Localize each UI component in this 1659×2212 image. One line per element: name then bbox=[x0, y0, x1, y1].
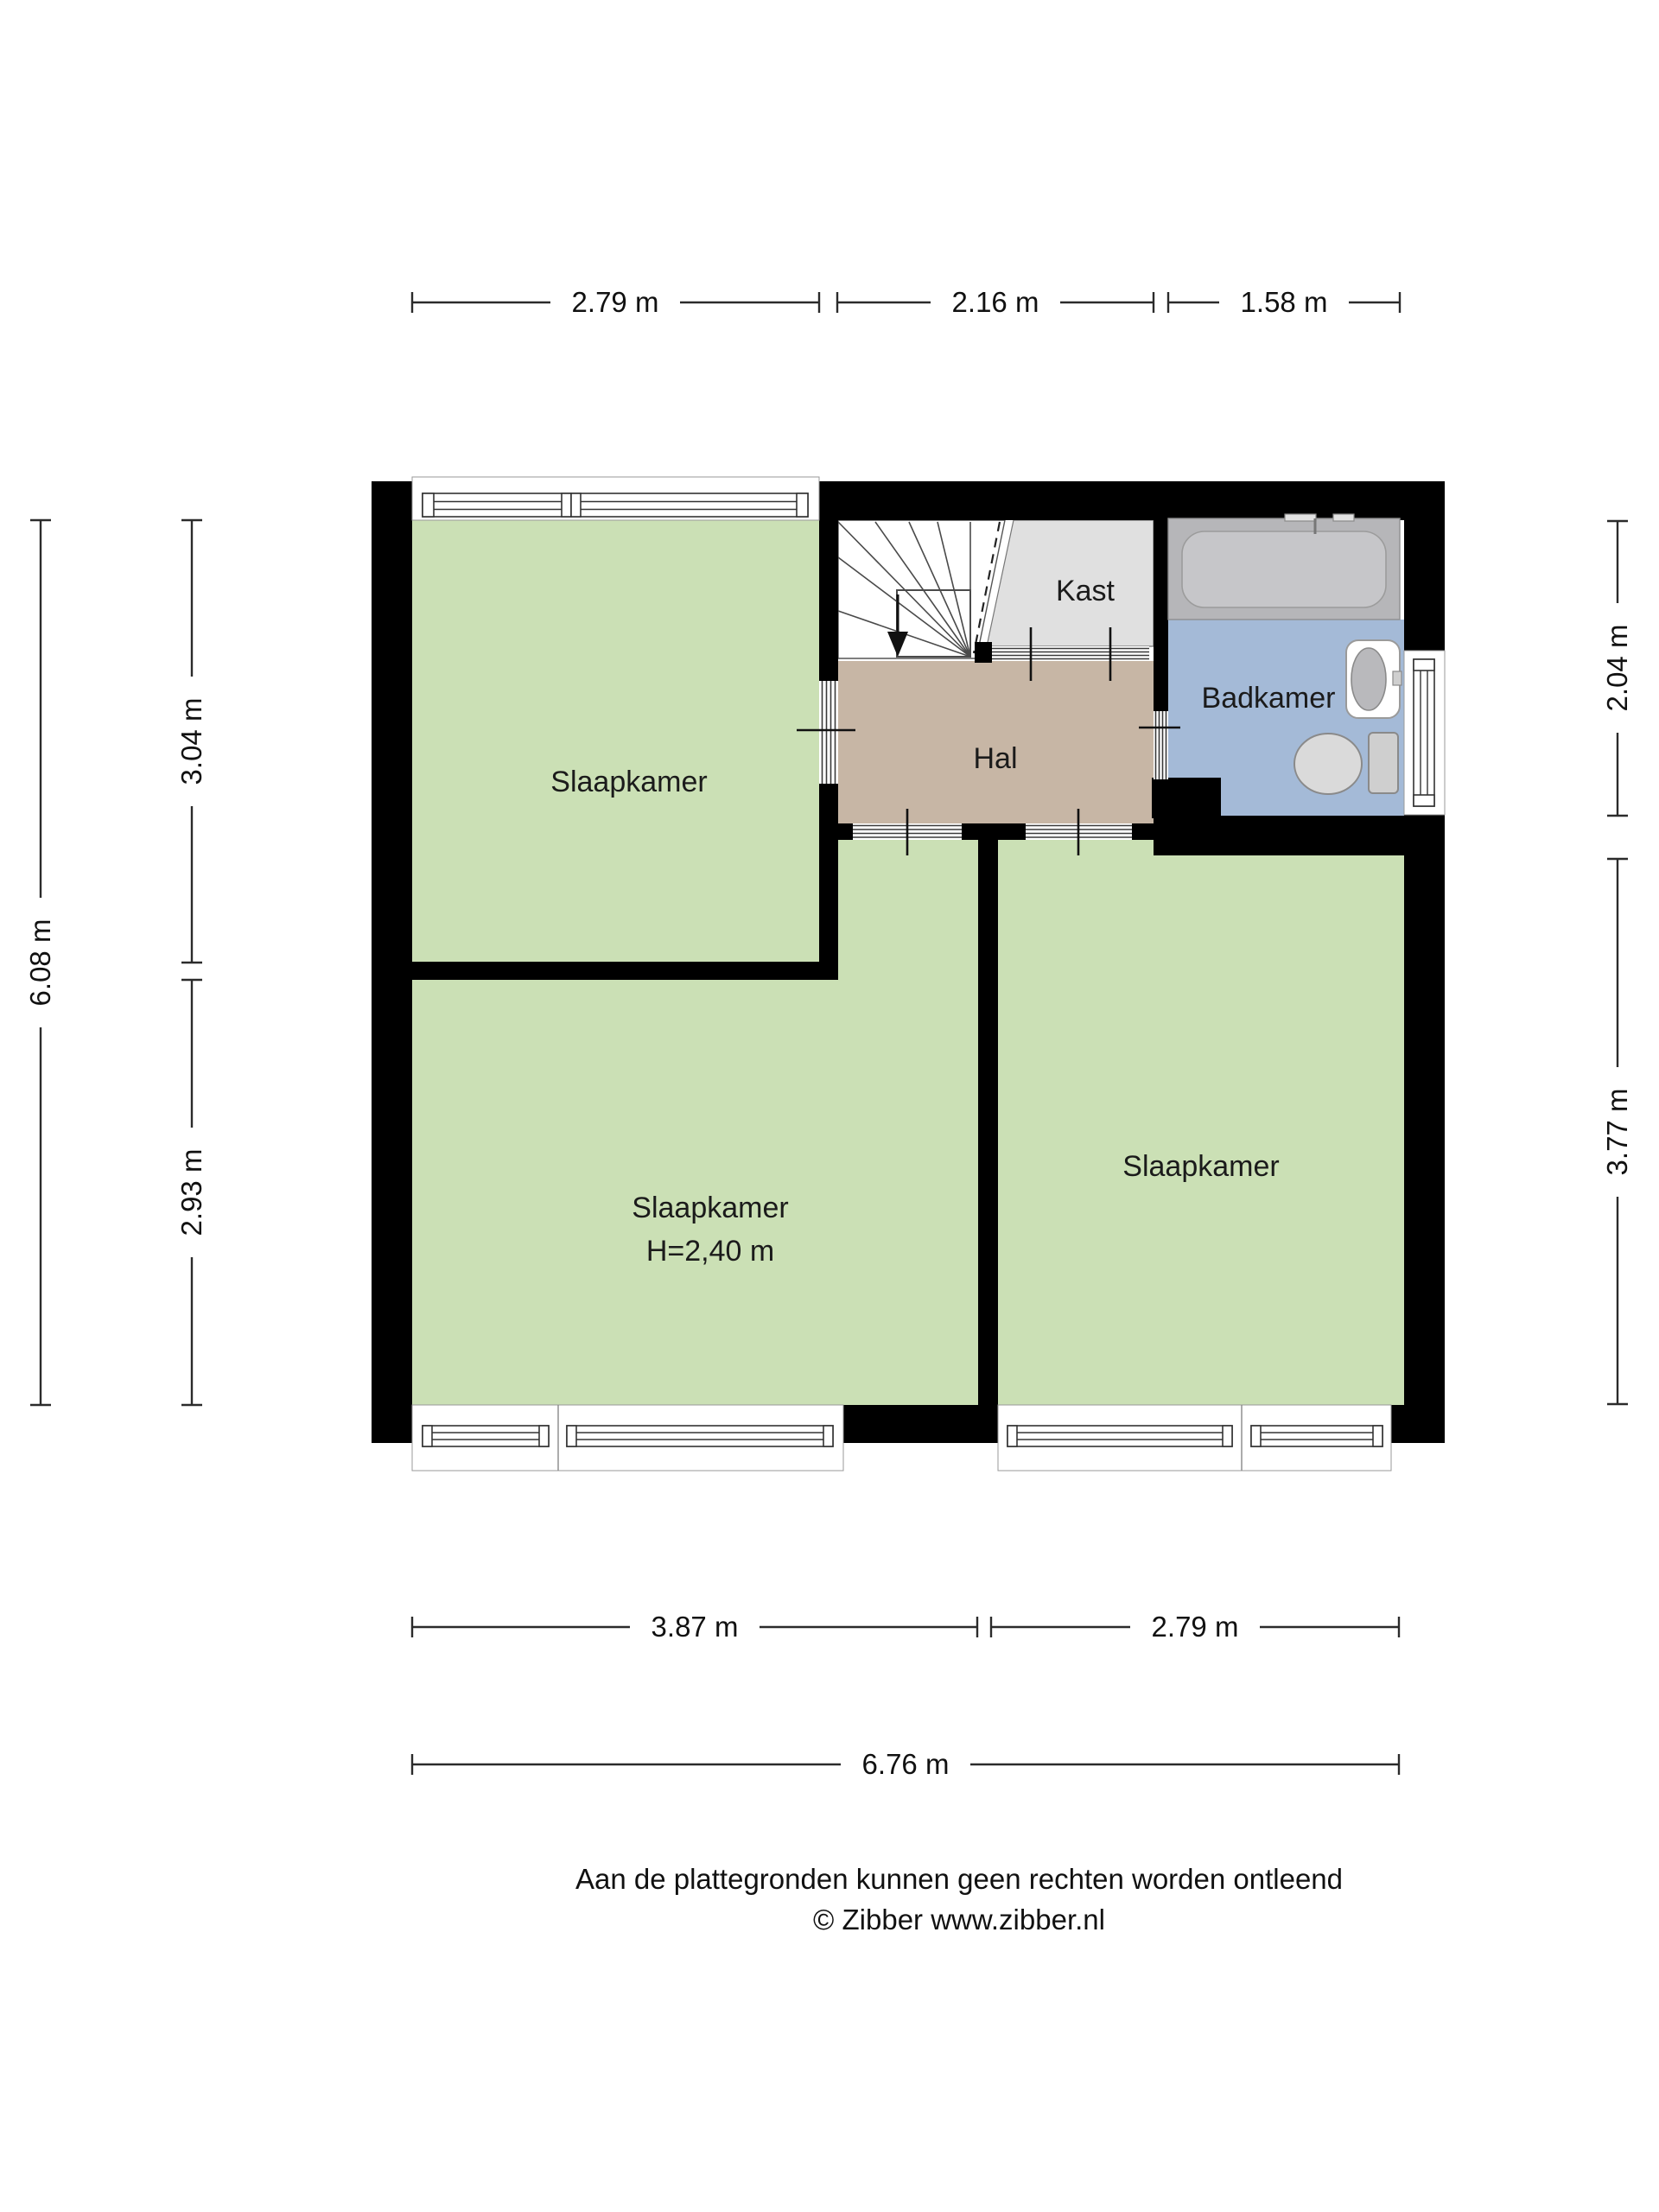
wall-closet-stub bbox=[975, 642, 992, 663]
window-glass bbox=[423, 493, 808, 517]
room-bedroom-bottom-right-floor bbox=[998, 840, 1404, 1405]
wall-bathroom-corner bbox=[1152, 778, 1221, 818]
room-label-bedroom-bottom-left-height: H=2,40 m bbox=[646, 1235, 774, 1268]
dimension-left-overall: 6.08 m bbox=[24, 520, 56, 1405]
room-label-hall: Hal bbox=[973, 742, 1017, 775]
dimension-label: 3.04 m bbox=[175, 698, 207, 785]
room-label-bedroom-bottom-left: Slaapkamer bbox=[632, 1192, 788, 1224]
window-bottom-left bbox=[412, 1405, 843, 1471]
floorplan-page: Slaapkamer Hal Kast Badkamer Slaapkamer … bbox=[0, 0, 1659, 2212]
footer: Aan de plattegronden kunnen geen rechten… bbox=[575, 1863, 1343, 1935]
room-bedroom-top-left-floor bbox=[412, 520, 819, 962]
window-bathroom-east bbox=[1404, 651, 1445, 815]
room-label-bedroom-top-left: Slaapkamer bbox=[550, 766, 707, 798]
window-glass bbox=[1414, 659, 1434, 806]
dimension-label: 6.76 m bbox=[862, 1748, 950, 1780]
footer-disclaimer: Aan de plattegronden kunnen geen rechten… bbox=[575, 1863, 1343, 1895]
window-end-post bbox=[823, 1426, 833, 1446]
dimension-label: 2.04 m bbox=[1601, 625, 1633, 712]
wall-hall-south-mid bbox=[962, 823, 1026, 840]
window-end-post bbox=[1373, 1426, 1382, 1446]
dimension-left-upper: 3.04 m bbox=[175, 520, 207, 963]
toilet-bowl bbox=[1294, 734, 1362, 794]
wall-bathroom-south bbox=[1154, 816, 1404, 855]
wall-left-bedrooms-divider bbox=[372, 962, 838, 980]
window-glass bbox=[1007, 1426, 1232, 1446]
window-end-post bbox=[567, 1426, 576, 1446]
window-end-post bbox=[1414, 659, 1434, 671]
window-end-post bbox=[1007, 1426, 1017, 1446]
dimension-label: 2.79 m bbox=[572, 286, 659, 318]
window-mullion bbox=[571, 493, 581, 517]
bathtub-faucet bbox=[1285, 514, 1316, 521]
footer-copyright: © Zibber www.zibber.nl bbox=[813, 1904, 1105, 1935]
dimension-label: 1.58 m bbox=[1241, 286, 1328, 318]
dimension-right-bathroom: 2.04 m bbox=[1601, 521, 1633, 816]
room-label-closet: Kast bbox=[1056, 575, 1116, 607]
window-end-post bbox=[1414, 795, 1434, 806]
window-end-post bbox=[539, 1426, 549, 1446]
window-top bbox=[412, 477, 819, 520]
wall-bottom-bedrooms-divider bbox=[978, 823, 998, 1443]
room-label-bathroom: Badkamer bbox=[1202, 682, 1336, 715]
dimension-top-stairs: 2.16 m bbox=[837, 286, 1154, 318]
bathtub-basin bbox=[1182, 531, 1386, 607]
dimension-top-left-room: 2.79 m bbox=[412, 286, 819, 318]
dimension-bottom-right-room: 2.79 m bbox=[991, 1611, 1399, 1643]
dimension-label: 2.93 m bbox=[175, 1149, 207, 1236]
window-bottom-right bbox=[998, 1405, 1391, 1471]
window-glass bbox=[423, 1426, 549, 1446]
room-label-bedroom-bottom-right: Slaapkamer bbox=[1122, 1150, 1279, 1183]
dimension-left-lower: 2.93 m bbox=[175, 980, 207, 1405]
window-end-post bbox=[1251, 1426, 1261, 1446]
dimension-bottom-overall: 6.76 m bbox=[412, 1748, 1399, 1780]
window-glass bbox=[1251, 1426, 1382, 1446]
window-mullion bbox=[562, 493, 571, 517]
sink-faucet bbox=[1393, 671, 1402, 685]
bathtub-faucet-handle bbox=[1333, 514, 1354, 521]
toilet-tank bbox=[1369, 733, 1398, 793]
window-end-post bbox=[423, 1426, 432, 1446]
dimension-bottom-left-room: 3.87 m bbox=[412, 1611, 977, 1643]
floorplan-drawing: Slaapkamer Hal Kast Badkamer Slaapkamer … bbox=[0, 0, 1659, 2212]
window-end-post bbox=[797, 493, 808, 517]
dimension-label: 2.16 m bbox=[952, 286, 1039, 318]
dimension-label: 3.87 m bbox=[652, 1611, 739, 1643]
dimension-label: 6.08 m bbox=[24, 919, 56, 1007]
window-end-post bbox=[1223, 1426, 1232, 1446]
dimension-label: 3.77 m bbox=[1601, 1089, 1633, 1176]
wall-right bbox=[1404, 481, 1445, 1443]
dimension-label: 2.79 m bbox=[1152, 1611, 1239, 1643]
window-glass bbox=[567, 1426, 833, 1446]
dimension-right-bedroom: 3.77 m bbox=[1601, 859, 1633, 1404]
dimension-top-bathroom: 1.58 m bbox=[1168, 286, 1400, 318]
window-end-post bbox=[423, 493, 434, 517]
sink-basin bbox=[1351, 648, 1386, 710]
